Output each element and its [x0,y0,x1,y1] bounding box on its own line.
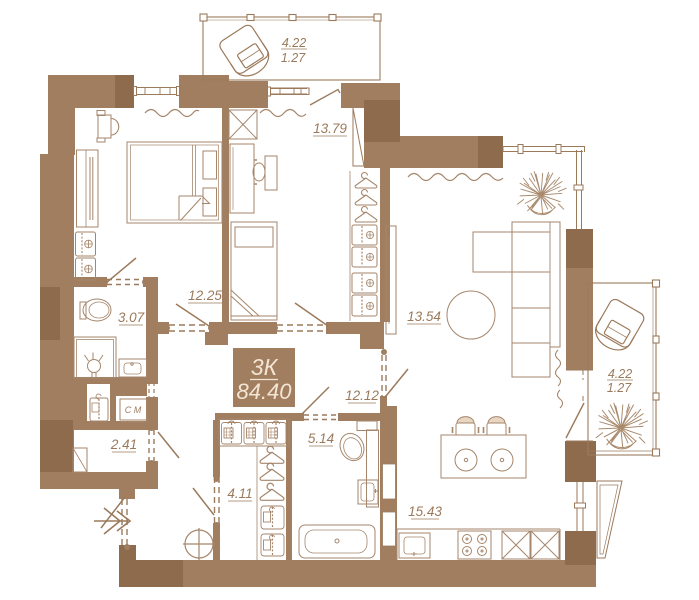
svg-text:12.12: 12.12 [345,388,379,403]
svg-text:13.54: 13.54 [407,309,441,324]
svg-text:1.27: 1.27 [281,51,306,65]
svg-text:1.27: 1.27 [607,381,632,395]
svg-text:4.11: 4.11 [227,486,252,501]
svg-text:84.40: 84.40 [236,379,292,404]
svg-text:4.22: 4.22 [282,36,306,50]
svg-text:3.07: 3.07 [118,310,145,325]
svg-text:4.22: 4.22 [608,367,632,381]
svg-text:15.43: 15.43 [408,504,442,519]
svg-text:12.25: 12.25 [188,288,222,303]
svg-text:С М: С М [125,405,142,415]
svg-text:2.41: 2.41 [110,437,137,452]
svg-text:13.79: 13.79 [313,121,347,136]
svg-text:5.14: 5.14 [308,431,334,446]
svg-text:3К: 3К [251,354,279,380]
